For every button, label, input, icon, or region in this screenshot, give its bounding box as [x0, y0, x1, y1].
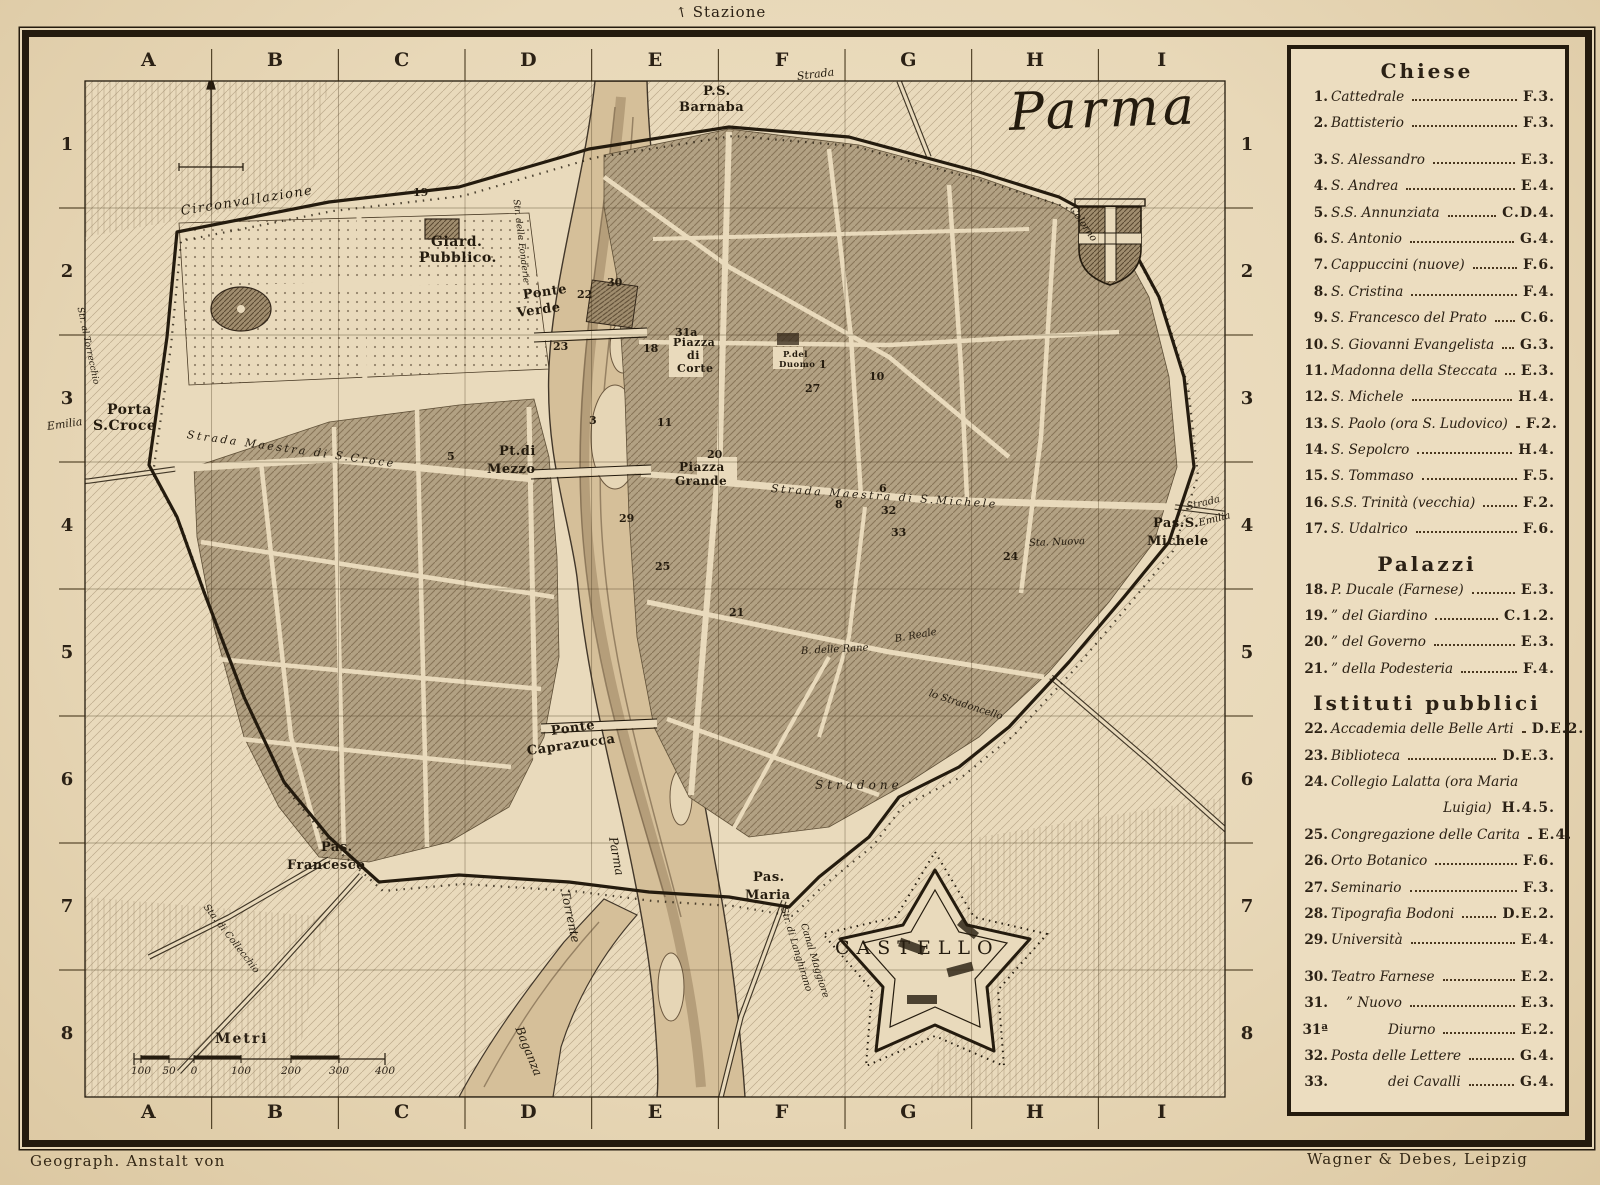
grid-number-right: 2 — [1241, 263, 1254, 281]
legend-item-name: S. Michele — [1331, 389, 1404, 405]
map-label: Parma — [1008, 80, 1199, 139]
legend-item-number: 6. — [1299, 231, 1328, 247]
legend-item-gridref: F.6. — [1523, 521, 1555, 537]
legend-item-gridref: C.6. — [1521, 310, 1555, 326]
map-label: Pas. — [753, 871, 785, 884]
legend-item-gridref: D.E.2. — [1502, 906, 1555, 922]
legend-item-number: 31. — [1299, 995, 1328, 1011]
legend-item-number: 10. — [1299, 337, 1328, 353]
grid-number-right: 7 — [1241, 898, 1254, 916]
legend-item-gridref: E.3. — [1521, 363, 1555, 379]
legend-dot-leader — [1472, 592, 1515, 594]
legend-item-name: S. Paolo (ora S. Ludovico) — [1331, 416, 1508, 432]
legend-item-name: Teatro Farnese — [1331, 969, 1435, 985]
map-label: Pas.S. — [1153, 517, 1199, 530]
map-number-label: 8 — [835, 499, 843, 510]
legend-item-name: S. Udalrico — [1331, 521, 1408, 537]
legend-item-name: S. Tommaso — [1331, 468, 1414, 484]
grid-letter-bottom: D — [520, 1103, 536, 1122]
grid-number-left: 6 — [61, 771, 74, 789]
legend-item: 23.BibliotecaD.E.3. — [1299, 748, 1555, 774]
legend-item-gridref: F.2. — [1526, 416, 1558, 432]
legend-dot-leader — [1469, 1084, 1514, 1086]
grid-number-right: 6 — [1241, 771, 1254, 789]
scale-tick-label: 300 — [329, 1065, 349, 1077]
legend-dot-leader — [1448, 215, 1496, 217]
legend-item-gridref: F.3. — [1523, 89, 1555, 105]
legend-item-number: 15. — [1299, 468, 1328, 484]
grid-letter-bottom: E — [648, 1103, 662, 1122]
legend-item-number: 2. — [1299, 115, 1328, 131]
legend-item-name: Università — [1331, 932, 1403, 948]
legend-item: 29.UniversitàE.4. — [1299, 932, 1555, 958]
legend-dot-leader — [1435, 618, 1498, 620]
legend-item: 6.S. AntonioG.4. — [1299, 231, 1555, 257]
legend-item-number: 4. — [1299, 178, 1328, 194]
legend-item-gridref: E.3. — [1521, 995, 1555, 1011]
legend-item-gridref: F.3. — [1523, 880, 1555, 896]
grid-number-left: 7 — [61, 898, 74, 916]
map-label: Piazza — [679, 461, 725, 473]
map-label: Duomo — [779, 361, 815, 370]
legend-item-gridref: F.3. — [1523, 115, 1555, 131]
legend-dot-leader — [1505, 373, 1514, 375]
legend-dot-leader — [1412, 399, 1513, 401]
legend-item: 21.” della PodesteriaF.4. — [1299, 661, 1555, 687]
legend-item-gridref: C.D.4. — [1502, 205, 1555, 221]
legend-item: 32.Posta delle LettereG.4. — [1299, 1048, 1555, 1074]
legend-item-name: Orto Botanico — [1331, 853, 1427, 869]
map-number-label: 18 — [643, 343, 658, 354]
scale-tick-label: 0 — [191, 1065, 198, 1077]
grid-letter-bottom: H — [1026, 1103, 1044, 1122]
map-label: Grande — [675, 475, 727, 487]
legend-panel: Chiese1.CattedraleF.3.2.BattisterioF.3.3… — [1287, 45, 1569, 1116]
legend-item-gridref: E.4. — [1538, 827, 1572, 843]
legend-dot-leader — [1434, 644, 1515, 646]
grid-letter-bottom: F — [775, 1103, 789, 1122]
legend-item-number: 26. — [1299, 853, 1328, 869]
map-label: Maria — [745, 889, 791, 902]
scale-tick-label: 50 — [162, 1065, 175, 1077]
map-label: Barnaba — [679, 101, 744, 114]
map-number-label: 33 — [891, 527, 906, 538]
legend-item-gridref: E.3. — [1521, 634, 1555, 650]
legend-item: 14.S. SepolcroH.4. — [1299, 442, 1555, 468]
legend-item-name: Accademia delle Belle Arti — [1331, 721, 1514, 737]
legend-item-gridref: F.4. — [1523, 661, 1555, 677]
legend-item-number: 9. — [1299, 310, 1328, 326]
map-number-label: 22 — [577, 289, 592, 300]
credit-right: Wagner & Debes, Leipzig — [1307, 1150, 1528, 1168]
map-label: Francesco — [287, 859, 365, 872]
legend-item-name: S.S. Annunziata — [1331, 205, 1440, 221]
legend-item-gridref: E.3. — [1521, 152, 1555, 168]
map-number-label: 24 — [1003, 551, 1018, 562]
legend-dot-leader — [1435, 863, 1517, 865]
map-label: Pt.di — [499, 445, 536, 458]
legend-item-name: S. Alessandro — [1331, 152, 1425, 168]
legend-item-number: 23. — [1299, 748, 1328, 764]
legend-dot-leader — [1483, 505, 1517, 507]
map-label: Pubblico. — [419, 251, 497, 265]
legend-item-name: Madonna della Steccata — [1331, 363, 1497, 379]
legend-dot-leader — [1469, 1058, 1514, 1060]
legend-dot-leader — [1433, 162, 1515, 164]
legend-dot-leader — [1443, 1032, 1514, 1034]
legend-item-gridref: C.1.2. — [1504, 608, 1555, 624]
grid-number-left: 4 — [61, 517, 74, 535]
legend-item-number: 32. — [1299, 1048, 1328, 1064]
legend-item-name: Seminario — [1331, 880, 1402, 896]
map-number-label: 20 — [707, 449, 722, 460]
legend-item-number: 31ª — [1299, 1022, 1328, 1038]
map-label: Stradone — [815, 779, 903, 791]
legend-dot-leader — [1461, 671, 1517, 673]
legend-item: 24.Collegio Lalatta (ora Maria — [1299, 774, 1555, 800]
map-label: di — [687, 350, 700, 361]
grid-number-left: 3 — [61, 390, 74, 408]
grid-letter-bottom: B — [267, 1103, 283, 1122]
legend-item-number: 30. — [1299, 969, 1328, 985]
legend-item-name: Biblioteca — [1331, 748, 1400, 764]
credit-left: Geograph. Anstalt von — [30, 1152, 226, 1170]
map-number-label: 31a — [675, 327, 697, 338]
legend-item: 5.S.S. AnnunziataC.D.4. — [1299, 205, 1555, 231]
map-number-label: 27 — [805, 383, 820, 394]
legend-section-title: Palazzi — [1299, 552, 1555, 576]
grid-number-right: 4 — [1241, 517, 1254, 535]
grid-letter-top: D — [520, 51, 536, 70]
page: ↑Stazione — [0, 0, 1600, 1185]
legend-item-name: ” del Governo — [1331, 634, 1426, 650]
legend-item-gridref: F.4. — [1523, 284, 1555, 300]
legend-item-number: 25. — [1299, 827, 1328, 843]
legend-item-gridref: G.4. — [1520, 1048, 1555, 1064]
legend-dot-leader — [1417, 452, 1512, 454]
north-arrow-icon: ↑ — [674, 4, 690, 22]
legend-item-name: S. Andrea — [1331, 178, 1398, 194]
legend-item-number: 14. — [1299, 442, 1328, 458]
legend-dot-leader — [1412, 125, 1517, 127]
legend-item-gridref: F.2. — [1523, 495, 1555, 511]
legend-item-gridref: G.3. — [1520, 337, 1555, 353]
legend-item: 25.Congregazione delle CaritaE.4. — [1299, 827, 1555, 853]
legend-item-number: 29. — [1299, 932, 1328, 948]
map-label: Giard. — [431, 235, 482, 249]
scale-tick-label: 400 — [375, 1065, 395, 1077]
legend-item-gridref: F.6. — [1523, 853, 1555, 869]
legend-item: 18.P. Ducale (Farnese)E.3. — [1299, 582, 1555, 608]
map-number-label: 5 — [447, 451, 455, 462]
legend-dot-leader — [1410, 1005, 1515, 1007]
legend-item-name: S. Cristina — [1331, 284, 1403, 300]
legend-item-gridref: H.4.5. — [1502, 800, 1555, 816]
legend-section-title: Istituti pubblici — [1299, 691, 1555, 715]
legend-item-number: 20. — [1299, 634, 1328, 650]
map-frame: ParmaCirconvallazioneGiard.Pubblico.Port… — [22, 30, 1592, 1147]
grid-number-right: 5 — [1241, 644, 1254, 662]
legend-item-gridref: G.4. — [1520, 1074, 1555, 1090]
legend-item: 3.S. AlessandroE.3. — [1299, 152, 1555, 178]
map-number-label: 30 — [607, 277, 622, 288]
legend-dot-leader — [1412, 99, 1517, 101]
legend-dot-leader — [1406, 188, 1514, 190]
legend-item-gridref: F.6. — [1523, 257, 1555, 273]
legend-item-name: Congregazione delle Carita — [1331, 827, 1520, 843]
legend-item-name: Luigia) — [1443, 800, 1492, 816]
map-label: Porta — [107, 403, 152, 417]
legend-item-number: 33. — [1299, 1074, 1328, 1090]
legend-item-name: ” della Podesteria — [1331, 661, 1453, 677]
map-label: P.del — [783, 351, 808, 360]
legend-item: 8.S. CristinaF.4. — [1299, 284, 1555, 310]
legend-dot-leader — [1528, 837, 1532, 839]
map-number-label: 3 — [589, 415, 597, 426]
grid-number-left: 5 — [61, 644, 74, 662]
legend-item-name: Collegio Lalatta (ora Maria — [1331, 774, 1518, 790]
legend-item-number: 19. — [1299, 608, 1328, 624]
legend-item-name: S. Giovanni Evangelista — [1331, 337, 1494, 353]
map-region: ParmaCirconvallazioneGiard.Pubblico.Port… — [29, 37, 1279, 1140]
legend-item-number: 21. — [1299, 661, 1328, 677]
grid-number-left: 1 — [61, 136, 74, 154]
legend-item: 1.CattedraleF.3. — [1299, 89, 1555, 115]
map-label: S.Croce — [93, 419, 156, 433]
grid-letter-bottom: A — [141, 1103, 156, 1122]
legend-dot-leader — [1422, 478, 1517, 480]
legend-item-number: 24. — [1299, 774, 1328, 790]
legend-item-number: 11. — [1299, 363, 1328, 379]
map-number-label: 25 — [655, 561, 670, 572]
map-number-label: 19 — [413, 187, 428, 198]
legend-item: 15.S. TommasoF.5. — [1299, 468, 1555, 494]
grid-number-right: 3 — [1241, 390, 1254, 408]
legend-item: 31ªDiurnoE.2. — [1299, 1022, 1555, 1048]
legend-dot-leader — [1462, 916, 1496, 918]
legend-item: 22.Accademia delle Belle ArtiD.E.2. — [1299, 721, 1555, 747]
map-number-label: 21 — [729, 607, 744, 618]
legend-item: 33.dei CavalliG.4. — [1299, 1074, 1555, 1100]
legend-item: 31.” NuovoE.3. — [1299, 995, 1555, 1021]
legend-item-name: S. Francesco del Prato — [1331, 310, 1487, 326]
legend-section-title: Chiese — [1299, 59, 1555, 83]
map-label: Corte — [677, 363, 713, 374]
legend-dot-leader — [1411, 942, 1515, 944]
legend-dot-leader — [1410, 890, 1517, 892]
legend-dot-leader — [1473, 267, 1517, 269]
legend-item: 2.BattisterioF.3. — [1299, 115, 1555, 141]
legend-item-name: Cattedrale — [1331, 89, 1404, 105]
legend-item-number: 27. — [1299, 880, 1328, 896]
legend-dot-leader — [1443, 979, 1515, 981]
legend-item: 26.Orto BotanicoF.6. — [1299, 853, 1555, 879]
legend-item: 9.S. Francesco del PratoC.6. — [1299, 310, 1555, 336]
legend-item-number: 16. — [1299, 495, 1328, 511]
legend-item-name: Battisterio — [1331, 115, 1404, 131]
legend-item: Luigia)H.4.5. — [1299, 800, 1555, 826]
legend-item: 27.SeminarioF.3. — [1299, 880, 1555, 906]
legend-item-name: P. Ducale (Farnese) — [1331, 582, 1464, 598]
map-number-label: 1 — [819, 359, 827, 370]
legend-item-gridref: E.3. — [1521, 582, 1555, 598]
legend-dot-leader — [1410, 241, 1514, 243]
legend-item-name: Tipografia Bodoni — [1331, 906, 1454, 922]
legend-item-gridref: E.2. — [1521, 969, 1555, 985]
legend-dot-leader — [1408, 758, 1496, 760]
grid-letter-top: F — [775, 51, 789, 70]
legend-dot-leader — [1516, 426, 1520, 428]
legend-item-gridref: F.5. — [1523, 468, 1555, 484]
grid-letter-top: H — [1026, 51, 1044, 70]
legend-item-name: ” Nuovo — [1346, 995, 1402, 1011]
map-number-label: 29 — [619, 513, 634, 524]
station-label: ↑Stazione — [676, 3, 766, 21]
legend-dot-leader — [1522, 731, 1526, 733]
grid-letter-top: E — [648, 51, 662, 70]
legend-item: 12.S. MicheleH.4. — [1299, 389, 1555, 415]
scale-tick-label: 100 — [231, 1065, 251, 1077]
legend-item-gridref: G.4. — [1520, 231, 1555, 247]
legend-item-number: 17. — [1299, 521, 1328, 537]
legend-item: 16.S.S. Trinità (vecchia)F.2. — [1299, 495, 1555, 521]
legend-item: 10.S. Giovanni EvangelistaG.3. — [1299, 337, 1555, 363]
grid-letter-top: B — [267, 51, 283, 70]
legend-item-name: ” del Giardino — [1331, 608, 1427, 624]
legend-item: 30.Teatro FarneseE.2. — [1299, 969, 1555, 995]
map-number-label: 23 — [553, 341, 568, 352]
legend-item-number: 8. — [1299, 284, 1328, 300]
map-number-label: 11 — [657, 417, 672, 428]
legend-item-number: 12. — [1299, 389, 1328, 405]
grid-number-right: 8 — [1241, 1025, 1254, 1043]
legend-item: 17.S. UdalricoF.6. — [1299, 521, 1555, 547]
grid-letter-bottom: C — [394, 1103, 409, 1122]
legend-item: 19.” del GiardinoC.1.2. — [1299, 608, 1555, 634]
legend-item-gridref: E.4. — [1521, 178, 1555, 194]
legend-item-name: Posta delle Lettere — [1331, 1048, 1461, 1064]
scale-bar-label: Metri — [215, 1031, 269, 1047]
legend-item-gridref: E.2. — [1521, 1022, 1555, 1038]
grid-number-left: 8 — [61, 1025, 74, 1043]
legend-dot-leader — [1495, 320, 1515, 322]
legend-item: 11.Madonna della SteccataE.3. — [1299, 363, 1555, 389]
legend-item-number: 1. — [1299, 89, 1328, 105]
legend-item-number: 28. — [1299, 906, 1328, 922]
legend-item: 13.S. Paolo (ora S. Ludovico)F.2. — [1299, 416, 1555, 442]
legend-item-name: Diurno — [1388, 1022, 1435, 1038]
legend-item-gridref: H.4. — [1518, 442, 1555, 458]
scale-tick-label: 100 — [131, 1065, 151, 1077]
grid-number-left: 2 — [61, 263, 74, 281]
legend-item-number: 18. — [1299, 582, 1328, 598]
grid-letter-top: I — [1157, 51, 1166, 70]
legend-item-name: Cappuccini (nuove) — [1331, 257, 1465, 273]
grid-number-right: 1 — [1241, 136, 1254, 154]
map-label: P.S. — [703, 85, 731, 98]
legend-item-gridref: H.4. — [1518, 389, 1555, 405]
legend-item-name: S.S. Trinità (vecchia) — [1331, 495, 1475, 511]
legend-item-gridref: E.4. — [1521, 932, 1555, 948]
map-number-label: 32 — [881, 505, 896, 516]
legend-item-number: 13. — [1299, 416, 1328, 432]
map-label: Pas. — [321, 841, 353, 854]
map-label: Sta. Nuova — [1029, 537, 1085, 549]
legend-item-number: 3. — [1299, 152, 1328, 168]
scale-tick-label: 200 — [281, 1065, 301, 1077]
legend-dot-leader — [1416, 531, 1517, 533]
grid-letter-top: C — [394, 51, 409, 70]
map-label: Mezzo — [487, 463, 536, 476]
legend-item-number: 7. — [1299, 257, 1328, 273]
giardino-pubblico — [179, 213, 549, 385]
map-label: CASTELLO — [835, 939, 1000, 958]
legend-item: 4.S. AndreaE.4. — [1299, 178, 1555, 204]
legend-dot-leader — [1411, 294, 1517, 296]
legend-item-name: S. Antonio — [1331, 231, 1402, 247]
legend-item-number: 22. — [1299, 721, 1328, 737]
legend-item-gridref: D.E.2. — [1532, 721, 1585, 737]
grid-letter-top: A — [141, 51, 156, 70]
legend-item: 7.Cappuccini (nuove)F.6. — [1299, 257, 1555, 283]
legend-dot-leader — [1502, 347, 1514, 349]
map-label: Michele — [1147, 535, 1209, 548]
grid-letter-bottom: G — [900, 1103, 916, 1122]
map-number-label: 10 — [869, 371, 884, 382]
legend-item-gridref: D.E.3. — [1502, 748, 1555, 764]
legend-item-name: S. Sepolcro — [1331, 442, 1409, 458]
grid-letter-bottom: I — [1157, 1103, 1166, 1122]
legend-item-number: 5. — [1299, 205, 1328, 221]
map-number-label: 6 — [879, 483, 887, 494]
legend-item: 28.Tipografia BodoniD.E.2. — [1299, 906, 1555, 932]
grid-letter-top: G — [900, 51, 916, 70]
station-text: Stazione — [693, 3, 767, 21]
legend-item: 20.” del GovernoE.3. — [1299, 634, 1555, 660]
legend-item-name: dei Cavalli — [1388, 1074, 1461, 1090]
